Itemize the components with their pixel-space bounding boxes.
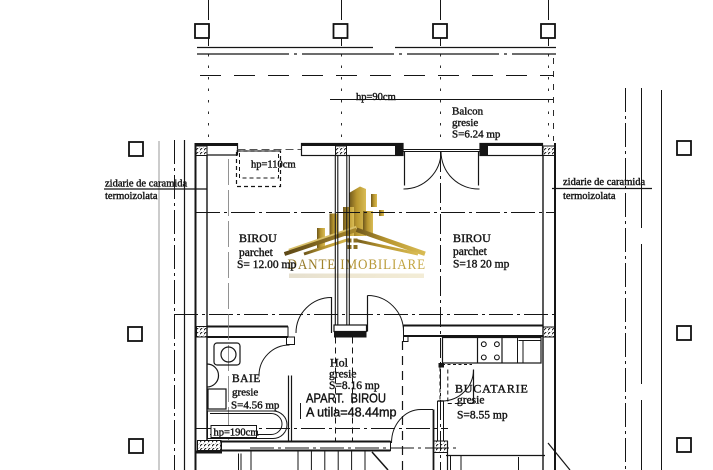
svg-text:gresie: gresie [329, 369, 356, 381]
svg-text:S=4.56 mp: S=4.56 mp [231, 400, 280, 412]
svg-text:hp=190cm: hp=190cm [214, 428, 259, 439]
svg-text:BAIE: BAIE [232, 373, 261, 385]
svg-text:termoizolata: termoizolata [563, 191, 616, 202]
svg-text:gresie: gresie [232, 387, 258, 399]
svg-text:zidarie de caramida: zidarie de caramida [563, 177, 646, 188]
svg-text:A utila=48.44mp: A utila=48.44mp [306, 405, 397, 420]
svg-text:parchet: parchet [453, 246, 488, 258]
svg-text:Balcon: Balcon [452, 106, 484, 118]
svg-text:termoizolata: termoizolata [105, 191, 158, 202]
svg-text:parchet: parchet [239, 247, 274, 259]
svg-text:gresie: gresie [457, 395, 484, 407]
svg-text:DANTE IMOBILIARE: DANTE IMOBILIARE [288, 257, 427, 273]
svg-text:Hol: Hol [330, 356, 349, 370]
svg-text:BUCATARIE: BUCATARIE [455, 382, 529, 396]
svg-text:S=18 20 mp: S=18 20 mp [453, 259, 510, 271]
svg-text:APART. BIROU: APART. BIROU [306, 391, 386, 406]
svg-text:hp=110cm: hp=110cm [251, 160, 296, 171]
svg-text:S=6.24 mp: S=6.24 mp [452, 129, 501, 141]
svg-text:BIROU: BIROU [239, 231, 277, 245]
svg-text:gresie: gresie [452, 117, 478, 129]
svg-text:BIROU: BIROU [453, 231, 491, 245]
svg-text:zidarie de caramida: zidarie de caramida [105, 179, 188, 190]
svg-text:hp=90cm: hp=90cm [356, 92, 396, 103]
svg-text:S= 12.00 mp: S= 12.00 mp [237, 259, 296, 271]
svg-text:S=8.55 mp: S=8.55 mp [457, 410, 508, 422]
